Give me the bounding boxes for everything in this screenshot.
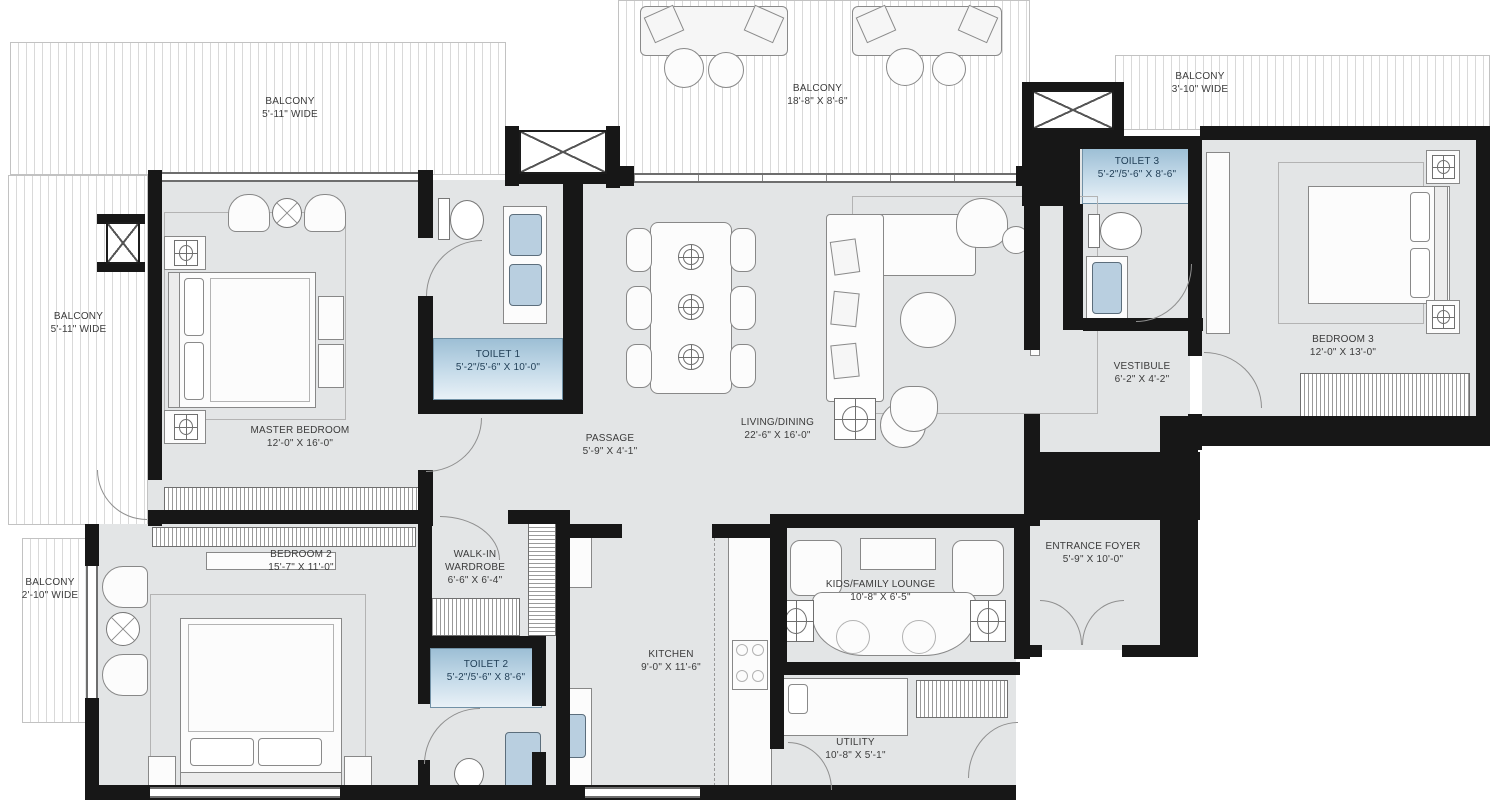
pillow	[190, 738, 254, 766]
wall	[418, 296, 433, 414]
sink-basin	[509, 264, 542, 306]
shaft-icon	[106, 222, 140, 264]
window	[585, 787, 700, 798]
headboard	[168, 272, 180, 408]
window	[86, 566, 98, 698]
label-kids-family-lounge: KIDS/FAMILY LOUNGE10'-8" X 6'-5"	[798, 578, 963, 604]
wall	[1078, 136, 1202, 149]
pillow	[1410, 192, 1430, 242]
dining-chair	[626, 344, 652, 388]
chair	[102, 566, 148, 608]
armchair	[890, 386, 938, 432]
wardrobe-bedroom3	[1300, 373, 1470, 417]
label-balcony-top-left: BALCONY5'-11" WIDE	[220, 95, 360, 121]
chair	[102, 654, 148, 696]
table-lamp-icon	[174, 414, 198, 440]
table-lamp-icon	[970, 600, 1006, 642]
label-balcony-top-center: BALCONY18'-8" X 8'-6"	[745, 82, 890, 108]
balcony-round-table	[886, 48, 924, 86]
wardrobe-walkin	[428, 598, 520, 636]
shaft-icon	[1032, 90, 1114, 130]
label-toilet-1: TOILET 15'-2"/5'-6" X 10'-0"	[435, 348, 561, 374]
wc-tank	[1088, 214, 1100, 248]
window	[150, 787, 340, 798]
dining-chair	[730, 344, 756, 388]
wall	[418, 636, 546, 648]
pillow	[184, 278, 204, 336]
balcony-round-table	[932, 52, 966, 86]
dining-chair	[626, 228, 652, 272]
wall	[85, 524, 99, 566]
label-toilet-3: TOILET 35'-2"/5'-6" X 8'-6"	[1084, 155, 1190, 181]
wall	[1030, 452, 1200, 520]
window	[162, 172, 418, 182]
label-balcony-top-right: BALCONY3'-10" WIDE	[1135, 70, 1265, 96]
wall	[508, 510, 558, 524]
label-passage: PASSAGE5'-9" X 4'-1"	[555, 432, 665, 458]
sofa-cushion	[830, 291, 859, 328]
label-living-dining: LIVING/DINING22'-6" X 16'-0"	[700, 416, 855, 442]
sofa-cushion	[830, 343, 859, 380]
bench	[318, 344, 344, 388]
wall	[556, 510, 570, 800]
wall	[1196, 416, 1490, 446]
sofa-cushion	[902, 620, 936, 654]
mattress-line	[210, 278, 310, 402]
label-balcony-bottom-left: BALCONY2'-10" WIDE	[14, 576, 86, 602]
label-utility: UTILITY10'-8" X 5'-1"	[788, 736, 923, 762]
sink-basin	[1092, 262, 1122, 314]
pouf	[900, 292, 956, 348]
wall	[1024, 180, 1040, 350]
wc-toilet1	[450, 200, 484, 240]
burner	[736, 644, 748, 656]
label-toilet-2: TOILET 25'-2"/5'-6" X 8'-6"	[432, 658, 540, 684]
wall	[418, 170, 433, 238]
wall	[770, 662, 1020, 675]
headboard	[1434, 186, 1448, 304]
wall	[418, 510, 433, 524]
label-vestibule: VESTIBULE6'-2" X 4'-2"	[1072, 360, 1212, 386]
wc-toilet3	[1100, 212, 1142, 250]
label-master-bedroom: MASTER BEDROOM12'-0" X 16'-0"	[225, 424, 375, 450]
wall	[1122, 645, 1196, 657]
plate-setting	[678, 344, 704, 370]
pillow	[1410, 248, 1430, 298]
label-entrance-foyer: ENTRANCE FOYER5'-9" X 10'-0"	[1028, 540, 1158, 566]
round-table	[106, 612, 140, 646]
balcony-round-table	[664, 48, 704, 88]
wall	[148, 170, 162, 480]
dining-chair	[730, 228, 756, 272]
shaft-icon	[519, 130, 607, 174]
burner	[752, 644, 764, 656]
wall	[1063, 204, 1083, 330]
tv-console	[860, 538, 936, 570]
wall	[770, 514, 1024, 528]
wall	[85, 698, 99, 798]
label-bedroom-2: BEDROOM 215'-7" X 11'-0"	[226, 548, 376, 574]
wardrobe-utility	[916, 680, 1008, 718]
desk	[1206, 152, 1230, 334]
wall	[1188, 140, 1202, 356]
chair	[228, 194, 270, 232]
sofa-cushion	[836, 620, 870, 654]
wc-tank	[438, 198, 450, 240]
table-lamp-icon	[1432, 155, 1455, 179]
pillow	[788, 684, 808, 714]
wall	[418, 648, 430, 704]
label-kitchen: KITCHEN9'-0" X 11'-6"	[612, 648, 730, 674]
wall	[1014, 514, 1030, 659]
wall	[770, 528, 787, 670]
wall	[618, 166, 634, 186]
pillow	[184, 342, 204, 400]
plate-setting	[678, 244, 704, 270]
pillow	[258, 738, 322, 766]
table-lamp-icon	[174, 240, 198, 266]
plate-setting	[678, 294, 704, 320]
bench	[318, 296, 344, 340]
burner	[736, 670, 748, 682]
table-lamp-icon	[1432, 305, 1455, 329]
window-sliding	[634, 173, 1016, 183]
round-table	[272, 198, 302, 228]
wall	[1200, 126, 1490, 140]
wall	[563, 184, 583, 414]
wall	[433, 400, 563, 414]
floor-plan: BALCONY5'-11" WIDE BALCONY18'-8" X 8'-6"…	[0, 0, 1500, 800]
wardrobe-bedroom2	[152, 527, 416, 547]
wardrobe-walkin-side	[528, 516, 556, 636]
balcony-round-table	[708, 52, 744, 88]
wall	[770, 675, 784, 749]
wall	[712, 524, 772, 538]
sofa-cushion	[830, 238, 860, 275]
wall	[148, 510, 420, 524]
label-walk-in-wardrobe: WALK-IN WARDROBE6'-6" X 6'-4"	[424, 548, 526, 588]
dining-chair	[730, 286, 756, 330]
chair	[304, 194, 346, 232]
armchair	[956, 198, 1008, 248]
burner	[752, 670, 764, 682]
label-balcony-left: BALCONY5'-11" WIDE	[16, 310, 141, 336]
sink-basin	[509, 214, 542, 256]
wall	[1476, 126, 1490, 446]
mattress-line	[188, 624, 334, 732]
dining-chair	[626, 286, 652, 330]
label-bedroom-3: BEDROOM 312'-0" X 13'-0"	[1268, 333, 1418, 359]
